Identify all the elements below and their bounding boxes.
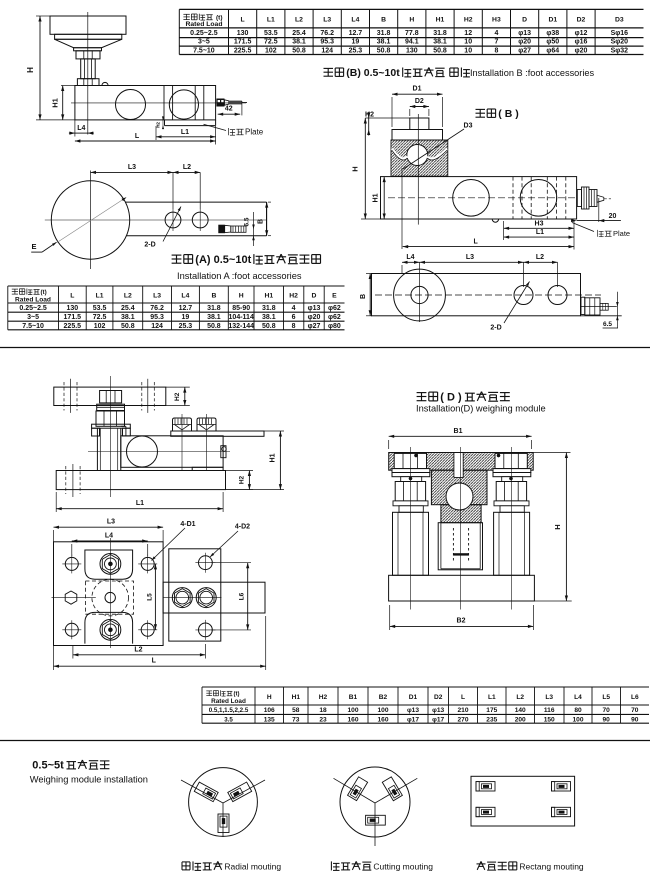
svg-text:E: E <box>332 293 337 300</box>
svg-text:L2: L2 <box>536 254 544 261</box>
svg-text:L4: L4 <box>574 694 582 701</box>
svg-text:L5: L5 <box>602 694 610 701</box>
svg-text:L2: L2 <box>134 646 142 653</box>
svg-text:10: 10 <box>464 47 472 54</box>
svg-text:53.5: 53.5 <box>264 30 278 37</box>
svg-text:φ38: φ38 <box>546 30 559 37</box>
svg-text:φ13: φ13 <box>518 30 531 37</box>
svg-text:124: 124 <box>151 323 163 330</box>
svg-text:7.5~10: 7.5~10 <box>22 323 44 330</box>
svg-text:132-144: 132-144 <box>228 323 254 330</box>
svg-text:(A) 0.5~10t: (A) 0.5~10t <box>195 254 251 266</box>
svg-text:12: 12 <box>464 30 472 37</box>
svg-text:95.3: 95.3 <box>150 314 164 321</box>
svg-text:L: L <box>461 694 465 701</box>
svg-text:Installation A :foot accessori: Installation A :foot accessories <box>177 271 302 281</box>
svg-text:L2: L2 <box>183 164 191 171</box>
svg-text:φ13: φ13 <box>308 305 321 312</box>
svg-text:100: 100 <box>572 717 583 724</box>
svg-text:Sφ32: Sφ32 <box>611 47 629 54</box>
svg-text:B: B <box>360 294 367 299</box>
svg-text:Rated Load: Rated Load <box>185 21 222 28</box>
svg-text:130: 130 <box>66 305 78 312</box>
svg-text:L3: L3 <box>107 519 115 526</box>
svg-text:90: 90 <box>631 717 639 724</box>
svg-text:B: B <box>258 219 265 224</box>
svg-text:φ27: φ27 <box>518 47 531 54</box>
svg-text:D: D <box>312 293 317 300</box>
svg-text:72.5: 72.5 <box>264 39 278 46</box>
svg-text:31.8: 31.8 <box>377 30 391 37</box>
svg-text:171.5: 171.5 <box>234 39 252 46</box>
svg-text:38.1: 38.1 <box>207 314 221 321</box>
svg-text:Weighing module installation: Weighing module installation <box>30 775 148 785</box>
svg-text:L3: L3 <box>466 254 474 261</box>
svg-text:100: 100 <box>347 707 358 714</box>
svg-text:φ80: φ80 <box>328 323 341 330</box>
svg-text:(t): (t) <box>41 289 47 296</box>
svg-text:H1: H1 <box>372 193 379 202</box>
svg-text:φ62: φ62 <box>328 314 341 321</box>
svg-text:L2: L2 <box>295 17 303 24</box>
svg-text:130: 130 <box>406 47 418 54</box>
svg-text:270: 270 <box>457 717 468 724</box>
svg-text:L1: L1 <box>536 229 544 236</box>
svg-text:31.8: 31.8 <box>433 30 447 37</box>
svg-text:L3: L3 <box>153 293 161 300</box>
svg-text:D2: D2 <box>415 98 424 105</box>
svg-text:50.8: 50.8 <box>207 323 221 330</box>
svg-text:B2: B2 <box>379 694 388 701</box>
svg-text:76.2: 76.2 <box>320 30 334 37</box>
svg-text:L: L <box>241 17 245 24</box>
svg-text:4: 4 <box>292 305 296 312</box>
svg-text:31.8: 31.8 <box>262 305 276 312</box>
svg-text:135: 135 <box>264 717 275 724</box>
svg-text:19: 19 <box>182 314 190 321</box>
svg-text:Cutting mouting: Cutting mouting <box>373 862 433 872</box>
svg-text:6.5: 6.5 <box>244 217 251 226</box>
svg-text:95.3: 95.3 <box>320 39 334 46</box>
svg-text:225.5: 225.5 <box>234 47 252 54</box>
svg-text:H2: H2 <box>174 392 181 401</box>
svg-text:L1: L1 <box>267 17 275 24</box>
svg-text:B1: B1 <box>454 428 463 435</box>
svg-text:3.5: 3.5 <box>224 717 233 724</box>
svg-text:D3: D3 <box>615 17 624 24</box>
svg-text:L2: L2 <box>124 293 132 300</box>
svg-text:73: 73 <box>292 717 300 724</box>
svg-text:0.5,1,1.5,2,2.5: 0.5,1,1.5,2,2.5 <box>209 707 249 714</box>
svg-text:D1: D1 <box>548 17 557 24</box>
svg-text:L: L <box>473 239 478 246</box>
svg-text:171.5: 171.5 <box>64 314 82 321</box>
svg-text:2-D: 2-D <box>490 325 501 332</box>
svg-text:38.1: 38.1 <box>262 314 276 321</box>
svg-text:( B ): ( B ) <box>498 108 518 120</box>
svg-text:160: 160 <box>377 717 388 724</box>
svg-text:0.25~2.5: 0.25~2.5 <box>190 30 218 37</box>
svg-text:4: 4 <box>494 30 498 37</box>
svg-text:235: 235 <box>486 717 497 724</box>
svg-text:φ64: φ64 <box>546 47 559 54</box>
svg-text:50.8: 50.8 <box>377 47 391 54</box>
svg-text:φ17: φ17 <box>407 717 419 724</box>
svg-text:200: 200 <box>515 717 526 724</box>
svg-text:H: H <box>409 17 414 24</box>
svg-text:6: 6 <box>292 314 296 321</box>
svg-text:L2: L2 <box>516 694 524 701</box>
svg-text:140: 140 <box>515 707 526 714</box>
svg-text:7.5~10: 7.5~10 <box>193 47 215 54</box>
svg-text:100: 100 <box>377 707 388 714</box>
svg-text:φ12: φ12 <box>575 30 588 37</box>
svg-text:3~5: 3~5 <box>198 39 210 46</box>
svg-text:L4: L4 <box>406 254 414 261</box>
svg-text:25.4: 25.4 <box>121 305 135 312</box>
svg-text:53.5: 53.5 <box>93 305 107 312</box>
svg-text:H2: H2 <box>319 694 328 701</box>
svg-text:Radial mouting: Radial mouting <box>224 862 281 872</box>
svg-text:Rated Load: Rated Load <box>15 297 51 304</box>
svg-text:L3: L3 <box>323 17 331 24</box>
svg-text:D2: D2 <box>434 694 443 701</box>
svg-text:18: 18 <box>319 707 327 714</box>
svg-text:φ20: φ20 <box>308 314 321 321</box>
svg-text:4-D2: 4-D2 <box>235 524 250 531</box>
svg-text:2-D: 2-D <box>144 242 155 249</box>
svg-text:D1: D1 <box>409 694 418 701</box>
svg-text:L: L <box>135 133 140 140</box>
svg-text:175: 175 <box>486 707 497 714</box>
svg-text:H2: H2 <box>464 17 473 24</box>
svg-text:80: 80 <box>574 707 582 714</box>
svg-text:L6: L6 <box>239 592 246 600</box>
svg-text:150: 150 <box>544 717 555 724</box>
svg-text:90: 90 <box>603 717 611 724</box>
svg-text:L4: L4 <box>105 533 113 540</box>
svg-text:φ17: φ17 <box>432 717 444 724</box>
svg-text:6.5: 6.5 <box>603 321 612 328</box>
svg-text:H: H <box>239 293 244 300</box>
svg-text:Rectang mouting: Rectang mouting <box>519 862 584 872</box>
svg-text:85-90: 85-90 <box>232 305 250 312</box>
svg-text:Plate: Plate <box>245 128 264 137</box>
svg-text:L6: L6 <box>631 694 639 701</box>
svg-text:H1: H1 <box>269 453 276 462</box>
svg-text:(B) 0.5~10t: (B) 0.5~10t <box>346 67 400 79</box>
svg-text:Sφ16: Sφ16 <box>611 30 629 37</box>
svg-text:B: B <box>381 17 386 24</box>
svg-text:L1: L1 <box>136 500 144 507</box>
svg-text:160: 160 <box>347 717 358 724</box>
svg-text:Installation B :foot accessori: Installation B :foot accessories <box>470 68 595 78</box>
svg-text:L3: L3 <box>545 694 553 701</box>
svg-text:70: 70 <box>603 707 611 714</box>
svg-text:0.25~2.5: 0.25~2.5 <box>19 305 47 312</box>
svg-text:72.5: 72.5 <box>93 314 107 321</box>
svg-text:φ62: φ62 <box>328 305 341 312</box>
svg-text:L3: L3 <box>128 164 136 171</box>
svg-text:D2: D2 <box>577 17 586 24</box>
svg-text:77.8: 77.8 <box>405 30 419 37</box>
svg-text:L1: L1 <box>181 129 189 136</box>
svg-text:Plate: Plate <box>613 229 630 238</box>
svg-text:12.7: 12.7 <box>349 30 363 37</box>
svg-text:38.1: 38.1 <box>121 314 135 321</box>
svg-text:102: 102 <box>265 47 277 54</box>
svg-text:50.8: 50.8 <box>262 323 276 330</box>
svg-text:31.8: 31.8 <box>207 305 221 312</box>
svg-text:210: 210 <box>457 707 468 714</box>
svg-text:φ20: φ20 <box>575 47 588 54</box>
svg-text:102: 102 <box>94 323 106 330</box>
svg-text:Sφ20: Sφ20 <box>611 39 629 46</box>
svg-text:106: 106 <box>264 707 275 714</box>
svg-text:H: H <box>267 694 272 701</box>
svg-text:D3: D3 <box>464 123 473 130</box>
svg-text:L4: L4 <box>351 17 359 24</box>
svg-text:L: L <box>70 293 74 300</box>
svg-text:Installation(D) weighing modul: Installation(D) weighing module <box>416 404 546 414</box>
svg-text:D: D <box>522 17 527 24</box>
svg-text:0.5~5t: 0.5~5t <box>32 760 64 772</box>
svg-text:25.3: 25.3 <box>349 47 363 54</box>
svg-text:38.1: 38.1 <box>377 39 391 46</box>
svg-text:H1: H1 <box>264 293 273 300</box>
svg-text:D1: D1 <box>413 86 422 93</box>
svg-text:116: 116 <box>544 707 555 714</box>
svg-text:B: B <box>211 293 216 300</box>
svg-text:H2: H2 <box>289 293 298 300</box>
svg-text:76.2: 76.2 <box>150 305 164 312</box>
svg-text:H: H <box>351 166 360 171</box>
svg-text:H3: H3 <box>535 220 544 227</box>
svg-text:H: H <box>553 524 562 529</box>
svg-text:7: 7 <box>494 39 498 46</box>
svg-text:φ16: φ16 <box>575 39 588 46</box>
svg-text:42: 42 <box>225 106 233 113</box>
svg-text:58: 58 <box>292 707 300 714</box>
svg-text:E: E <box>31 242 36 251</box>
svg-text:L5: L5 <box>146 593 153 601</box>
svg-text:130: 130 <box>237 30 249 37</box>
svg-text:70: 70 <box>631 707 639 714</box>
svg-text:Rated Load: Rated Load <box>211 698 246 705</box>
svg-text:50.8: 50.8 <box>433 47 447 54</box>
svg-text:8: 8 <box>494 47 498 54</box>
svg-text:94.1: 94.1 <box>405 39 419 46</box>
svg-text:φ20: φ20 <box>518 39 531 46</box>
svg-text:4-D1: 4-D1 <box>180 521 195 528</box>
svg-text:φ13: φ13 <box>407 707 419 714</box>
svg-text:10: 10 <box>464 39 472 46</box>
svg-text:L: L <box>152 658 157 665</box>
svg-text:H1: H1 <box>436 17 445 24</box>
svg-text:B2: B2 <box>457 618 466 625</box>
svg-text:(t): (t) <box>234 692 240 698</box>
svg-text:B1: B1 <box>349 694 358 701</box>
svg-text:L1: L1 <box>488 694 496 701</box>
svg-text:20: 20 <box>609 213 617 220</box>
svg-text:225.5: 225.5 <box>64 323 82 330</box>
svg-text:50.8: 50.8 <box>292 47 306 54</box>
svg-text:L4: L4 <box>181 293 189 300</box>
svg-text:H1: H1 <box>292 694 301 701</box>
svg-text:12.7: 12.7 <box>179 305 193 312</box>
svg-text:38.1: 38.1 <box>433 39 447 46</box>
svg-text:104-114: 104-114 <box>229 314 254 321</box>
svg-text:23: 23 <box>319 717 327 724</box>
svg-text:19: 19 <box>352 39 360 46</box>
svg-text:H2: H2 <box>238 475 245 484</box>
svg-text:( D ): ( D ) <box>440 392 462 404</box>
svg-text:50.8: 50.8 <box>121 323 135 330</box>
svg-text:φ27: φ27 <box>308 323 321 330</box>
svg-text:φ13: φ13 <box>432 707 444 714</box>
svg-text:L4: L4 <box>77 125 85 132</box>
svg-text:25.4: 25.4 <box>292 30 306 37</box>
svg-text:φ50: φ50 <box>546 39 559 46</box>
svg-text:3~5: 3~5 <box>27 314 39 321</box>
svg-text:8: 8 <box>292 323 296 330</box>
svg-text:124: 124 <box>321 47 333 54</box>
svg-text:H3: H3 <box>492 17 501 24</box>
svg-text:H: H <box>26 67 35 73</box>
svg-text:38.1: 38.1 <box>292 39 306 46</box>
svg-text:25.3: 25.3 <box>179 323 193 330</box>
svg-text:H1: H1 <box>51 98 60 108</box>
svg-text:L1: L1 <box>96 293 104 300</box>
